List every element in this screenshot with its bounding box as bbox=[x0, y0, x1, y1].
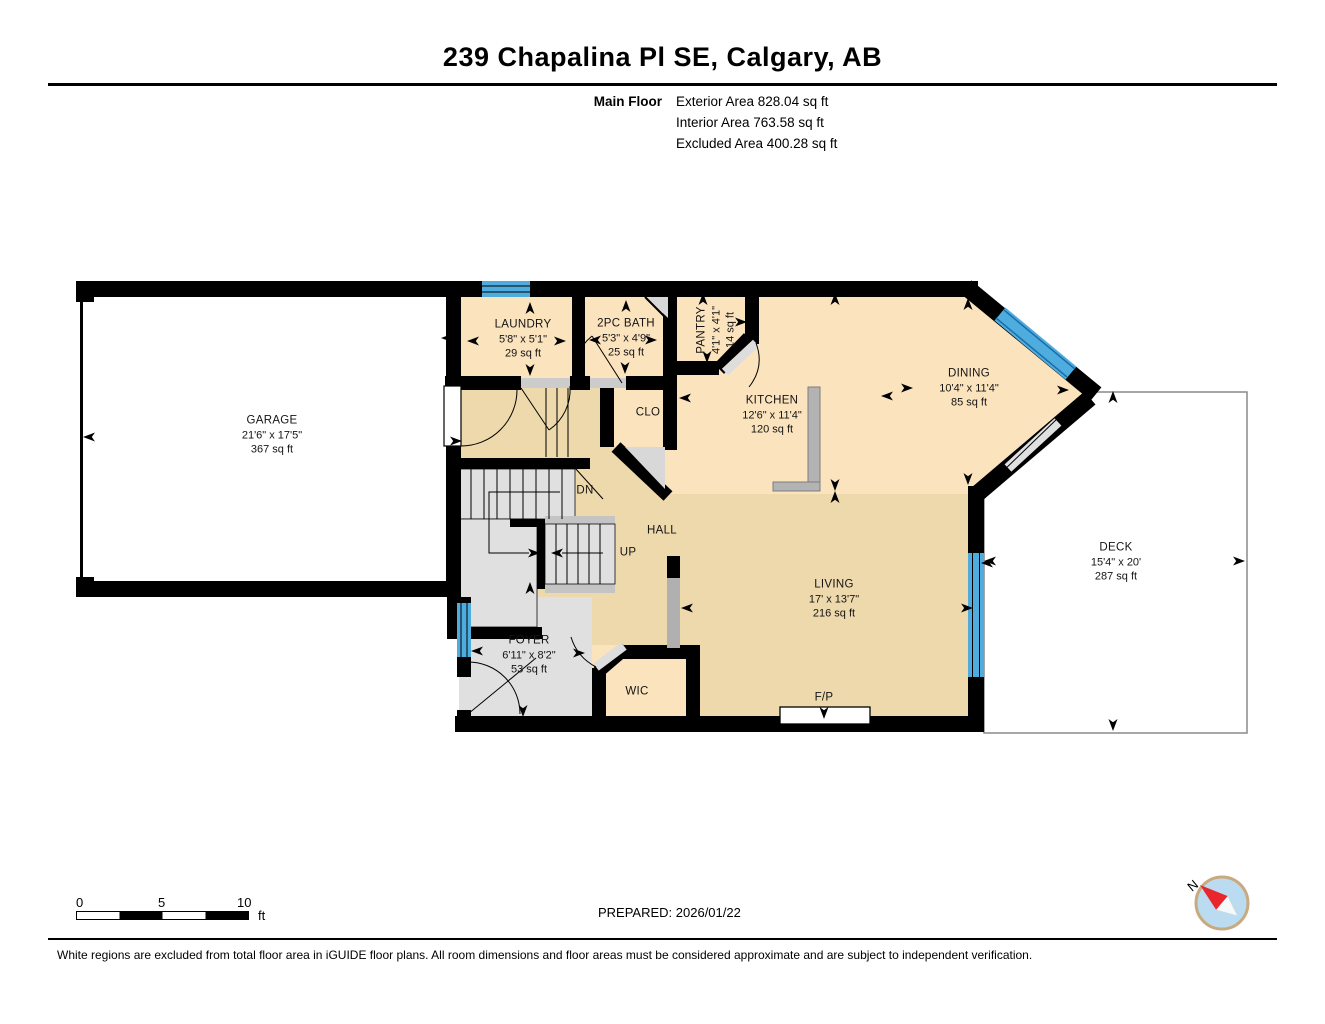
room-label-laundry: LAUNDRY5'8" x 5'1"29 sq ft bbox=[495, 318, 552, 361]
room-label-garage: GARAGE21'6" x 17'5"367 sq ft bbox=[242, 414, 302, 457]
room-label-kitchen: KITCHEN12'6" x 11'4"120 sq ft bbox=[742, 394, 802, 437]
room-label-dining: DINING10'4" x 11'4"85 sq ft bbox=[939, 367, 999, 410]
room-labels: GARAGE21'6" x 17'5"367 sq ftLAUNDRY5'8" … bbox=[0, 0, 1325, 1024]
scale-tick-10: 10 bbox=[237, 895, 251, 910]
scale-tick-5: 5 bbox=[158, 895, 165, 910]
room-label-hall: HALL bbox=[647, 524, 677, 539]
scale-unit: ft bbox=[258, 908, 265, 923]
room-label-dn: DN bbox=[576, 484, 593, 499]
room-label-foyer: FOYER6'11" x 8'2"53 sq ft bbox=[502, 634, 555, 677]
prepared-date: PREPARED: 2026/01/22 bbox=[598, 905, 741, 920]
room-label-pantry: PANTRY4'1" x 4'1"14 sq ft bbox=[695, 306, 738, 354]
floorplan-page: 239 Chapalina Pl SE, Calgary, AB Main Fl… bbox=[0, 0, 1325, 1024]
footer-divider bbox=[48, 938, 1277, 940]
room-label-clo: CLO bbox=[636, 406, 661, 421]
compass-icon bbox=[1190, 872, 1256, 936]
room-label-deck: DECK15'4" x 20'287 sq ft bbox=[1091, 541, 1141, 584]
scale-bar-icon bbox=[76, 911, 256, 923]
room-label-living: LIVING17' x 13'7"216 sq ft bbox=[809, 578, 859, 621]
room-label-up: UP bbox=[620, 546, 637, 561]
room-label-f-p: F/P bbox=[815, 691, 834, 706]
room-label-wic: WIC bbox=[625, 685, 648, 700]
disclaimer-text: White regions are excluded from total fl… bbox=[57, 948, 1032, 962]
scale-tick-0: 0 bbox=[76, 895, 83, 910]
room-label-2pc-bath: 2PC BATH5'3" x 4'9"25 sq ft bbox=[597, 317, 655, 360]
